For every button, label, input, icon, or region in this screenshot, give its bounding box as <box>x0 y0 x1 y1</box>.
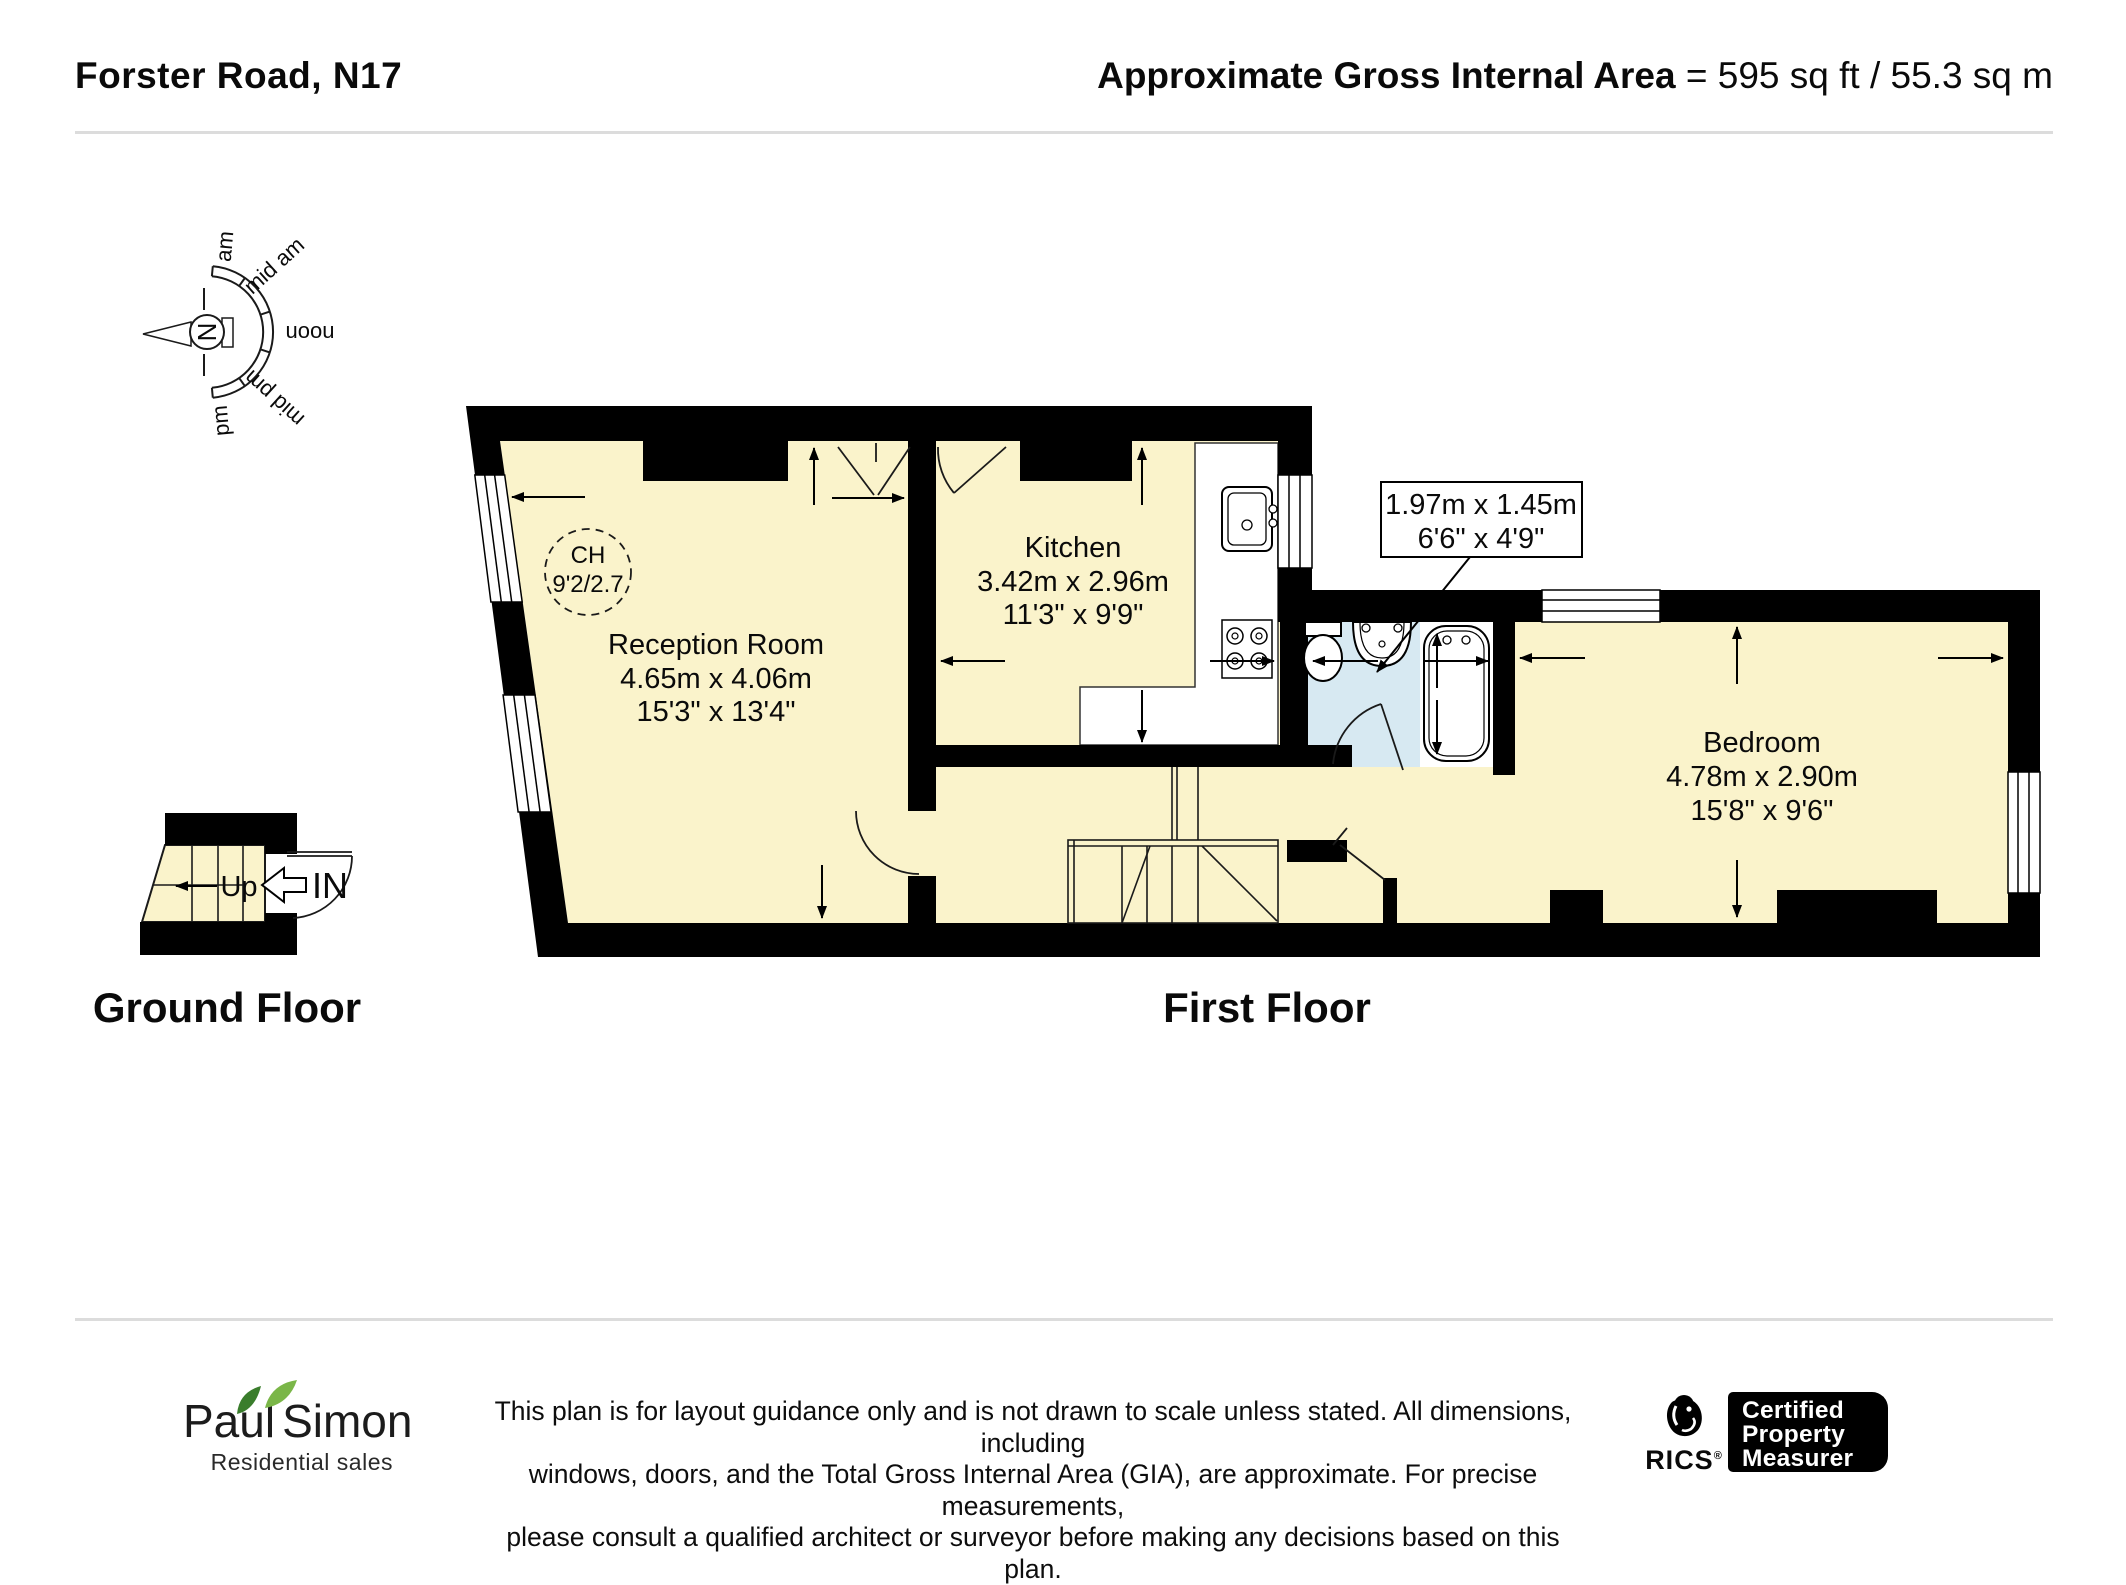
kitchen-window <box>1278 475 1312 568</box>
compass-sector-mid-pm: mid pm <box>239 365 309 432</box>
wall-recess-reception <box>643 441 788 481</box>
ceiling-height-label: CH <box>571 542 606 569</box>
ground-floor-label: Ground Floor <box>93 984 361 1031</box>
wall-recess-kitchen <box>1020 441 1132 481</box>
wall-bathroom-bedroom <box>1493 622 1515 775</box>
compass-sector-pm: pm <box>207 404 235 437</box>
stairs-up-label: Up <box>220 871 257 903</box>
north-needle <box>143 322 191 346</box>
gf-wall-top <box>165 813 297 845</box>
disclaimer-line-2: windows, doors, and the Total Gross Inte… <box>490 1459 1576 1522</box>
floorplan-drawing: N am mid am noon mid pm pm <box>0 0 2126 1549</box>
leaf-dark <box>237 1386 261 1414</box>
agency-tagline: Residential sales <box>183 1449 393 1476</box>
gf-wall-bottom <box>140 922 297 955</box>
rics-wordmark: RICS® <box>1645 1445 1723 1476</box>
bathroom-callout-metric: 1.97m x 1.45m <box>1385 489 1577 521</box>
ceiling-height-value: 9'2/2.7 <box>552 571 623 598</box>
wall-divider-stub <box>908 876 936 923</box>
compass-sector-mid-am: mid am <box>239 232 309 299</box>
bedroom-chimney-left <box>1550 890 1603 923</box>
kitchen-imperial: 11'3" x 9'9" <box>1003 599 1144 631</box>
registered-mark: ® <box>1714 1450 1723 1462</box>
compass-sector-noon: noon <box>286 321 335 346</box>
wall-reception-kitchen <box>908 441 936 811</box>
rics-badge: RICS® <box>1645 1392 1723 1476</box>
footer-divider <box>75 1318 2053 1321</box>
agency-logo: PaulSimon Residential sales <box>183 1394 393 1476</box>
leaf-icon <box>235 1378 305 1418</box>
cert-line-3: Measurer <box>1742 1447 1888 1471</box>
wall-bathroom-left <box>1280 622 1308 745</box>
bedroom-name: Bedroom <box>1703 727 1821 759</box>
compass-north-label: N <box>192 323 222 342</box>
disclaimer-line-1: This plan is for layout guidance only an… <box>490 1396 1576 1459</box>
toilet-cistern <box>1305 622 1341 636</box>
bedroom-window-top <box>1542 590 1660 622</box>
bathroom-callout-imperial: 6'6" x 4'9" <box>1418 523 1545 555</box>
compass-sector-am: am <box>211 230 239 263</box>
disclaimer-line-3: please consult a qualified architect or … <box>490 1522 1576 1585</box>
rics-lion-icon <box>1660 1392 1708 1440</box>
bedroom-window-right <box>2008 772 2040 893</box>
cert-line-1: Certified <box>1742 1399 1888 1423</box>
bedroom-metric: 4.78m x 2.90m <box>1666 761 1858 793</box>
bathtub <box>1424 626 1489 761</box>
certified-property-measurer-badge: Certified Property Measurer <box>1728 1392 1888 1472</box>
entrance-in-arrow <box>262 868 306 902</box>
reception-metric: 4.65m x 4.06m <box>620 663 812 695</box>
wall-hall-stub <box>1287 840 1347 862</box>
kitchen-hob <box>1222 620 1272 678</box>
reception-imperial: 15'3" x 13'4" <box>636 696 795 728</box>
wall-kitchen-hall <box>936 745 1352 767</box>
toilet-bowl <box>1304 635 1342 681</box>
wall-bedroom-door-stub <box>1383 878 1397 923</box>
kitchen-name: Kitchen <box>1025 532 1122 564</box>
leaf-light <box>265 1380 297 1408</box>
kitchen-metric: 3.42m x 2.96m <box>977 566 1169 598</box>
reception-name: Reception Room <box>608 629 824 661</box>
cert-line-2: Property <box>1742 1423 1888 1447</box>
bedroom-imperial: 15'8" x 9'6" <box>1691 795 1834 827</box>
kitchen-sink <box>1222 487 1272 551</box>
entrance-in-label: IN <box>312 865 348 906</box>
bedroom-chimney-right <box>1777 890 1937 923</box>
first-floor-label: First Floor <box>1163 984 1371 1031</box>
disclaimer: This plan is for layout guidance only an… <box>490 1396 1576 1585</box>
